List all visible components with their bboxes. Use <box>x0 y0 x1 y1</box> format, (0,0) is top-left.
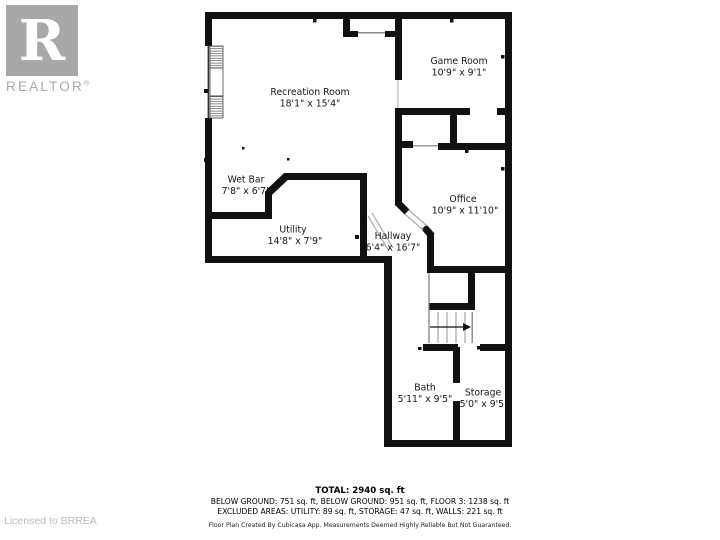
room-dims-game-room: 10'9" x 9'1" <box>432 68 487 79</box>
room-name-wet-bar: Wet Bar <box>228 175 265 186</box>
floor-plan-drawing: Recreation Room 18'1" x 15'4" Game Room … <box>0 0 720 540</box>
floor-plan-page: R REALTOR® <box>0 0 720 540</box>
room-name-office: Office <box>449 194 476 205</box>
area-summary: TOTAL: 2940 sq. ft BELOW GROUND: 751 sq.… <box>0 486 720 529</box>
room-dims-storage: 5'0" x 9'5" <box>460 399 509 410</box>
room-dims-hallway: 6'4" x 16'7" <box>366 243 421 254</box>
room-name-game-room: Game Room <box>430 56 487 67</box>
room-name-utility: Utility <box>279 225 307 236</box>
room-dims-wet-bar: 7'8" x 6'7" <box>222 186 271 197</box>
room-name-storage: Storage <box>465 388 502 399</box>
stair-direction-arrow <box>430 323 471 331</box>
room-dims-utility: 14'8" x 7'9" <box>268 236 323 247</box>
room-dims-office: 10'9" x 11'10" <box>432 206 498 217</box>
room-name-bath: Bath <box>414 383 436 394</box>
floor-areas-text: BELOW GROUND: 751 sq. ft, BELOW GROUND: … <box>0 497 720 506</box>
excluded-areas-text: EXCLUDED AREAS: UTILITY: 89 sq. ft, STOR… <box>0 507 720 516</box>
room-dims-bath: 5'11" x 9'5" <box>398 394 453 405</box>
room-dims-recreation: 18'1" x 15'4" <box>280 99 341 110</box>
license-watermark: Licensed to BRREA <box>4 515 97 527</box>
disclaimer-text: Floor Plan Created By Cubicasa App. Meas… <box>0 522 720 529</box>
room-name-recreation: Recreation Room <box>270 87 349 98</box>
room-name-hallway: Hallway <box>375 231 412 242</box>
total-area-text: TOTAL: 2940 sq. ft <box>0 486 720 496</box>
wall-fixture-hatched <box>210 46 223 118</box>
